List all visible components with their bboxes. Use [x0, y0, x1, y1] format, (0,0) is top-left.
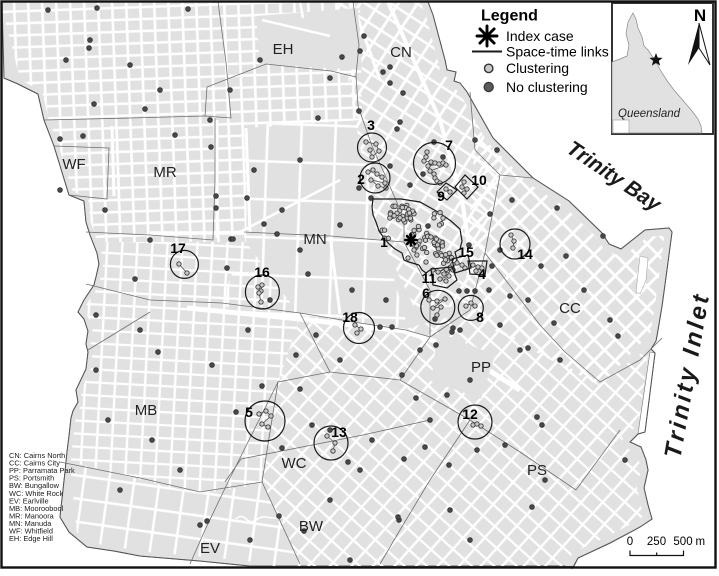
svg-text:250: 250 [647, 536, 666, 548]
svg-text:Clustering: Clustering [506, 60, 569, 76]
svg-text:MB: MB [135, 402, 158, 419]
svg-text:PS: PS [527, 462, 547, 479]
svg-text:4: 4 [478, 266, 486, 282]
svg-text:10: 10 [471, 172, 487, 188]
svg-text:MN: MN [303, 231, 326, 248]
svg-text:m: m [696, 536, 706, 548]
svg-text:3: 3 [367, 117, 375, 133]
svg-text:No clustering: No clustering [506, 79, 588, 95]
svg-text:18: 18 [342, 309, 358, 325]
svg-text:BW: BW [299, 518, 324, 535]
svg-text:15: 15 [458, 244, 474, 260]
svg-text:9: 9 [437, 188, 445, 204]
svg-text:Legend: Legend [481, 8, 538, 25]
svg-text:0: 0 [627, 536, 633, 548]
svg-text:12: 12 [462, 406, 478, 422]
svg-text:2: 2 [357, 171, 365, 187]
svg-text:6: 6 [422, 285, 430, 301]
svg-text:7: 7 [445, 137, 453, 153]
svg-text:EH: Edge Hill: EH: Edge Hill [9, 534, 53, 543]
svg-text:8: 8 [476, 309, 484, 325]
svg-text:11: 11 [422, 270, 437, 286]
svg-text:N: N [694, 6, 706, 25]
svg-text:Index case: Index case [506, 28, 574, 44]
svg-text:1: 1 [380, 234, 388, 250]
svg-text:MR: MR [153, 164, 176, 181]
svg-text:500: 500 [673, 536, 692, 548]
svg-text:5: 5 [245, 404, 253, 420]
svg-text:WF: WF [62, 156, 85, 173]
svg-text:WC: WC [282, 455, 307, 472]
svg-text:CC: CC [559, 300, 581, 317]
svg-text:13: 13 [331, 424, 347, 440]
svg-text:14: 14 [517, 246, 533, 262]
svg-text:16: 16 [254, 264, 270, 280]
svg-text:PP: PP [471, 359, 491, 376]
svg-text:EV: EV [200, 540, 220, 557]
svg-text:EH: EH [273, 41, 294, 58]
svg-text:CN: CN [390, 44, 412, 61]
svg-text:17: 17 [170, 240, 186, 256]
svg-text:Space-time links: Space-time links [506, 44, 609, 60]
svg-text:Queensland: Queensland [618, 108, 681, 120]
